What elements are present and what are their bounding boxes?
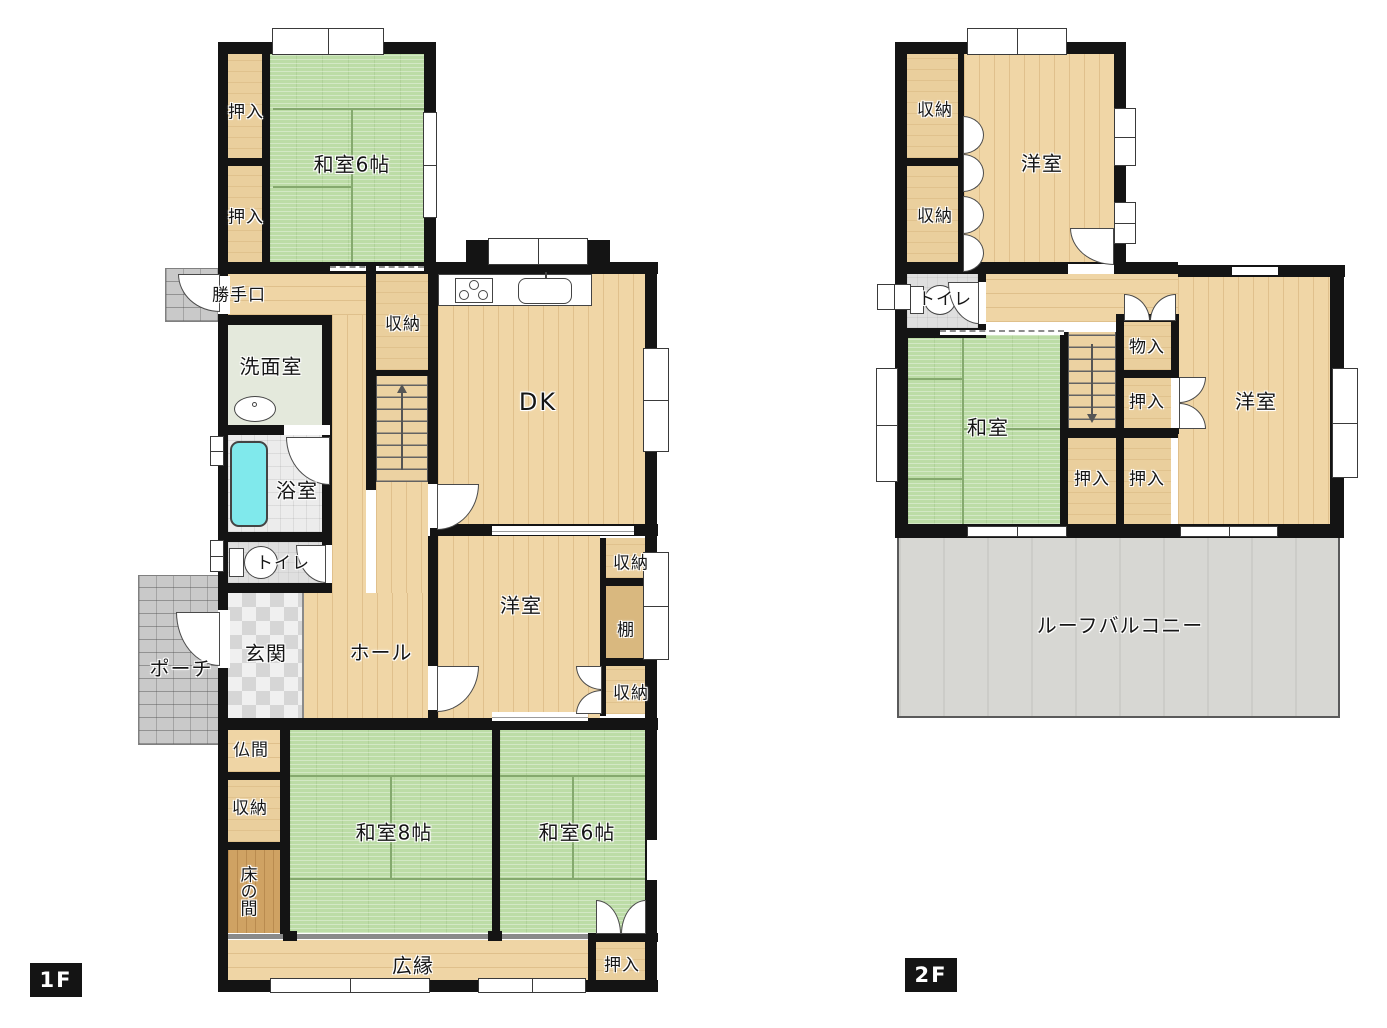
window (272, 28, 384, 55)
stairs-arrow-head (397, 384, 407, 393)
label-shuno1-2f: 収納 (917, 96, 953, 121)
wall (488, 931, 502, 941)
wall (1124, 370, 1178, 378)
stairs-arrow (1091, 344, 1093, 416)
wall (895, 158, 962, 166)
wall (280, 730, 290, 935)
window (210, 436, 224, 466)
window (1332, 368, 1358, 478)
sliding-door (330, 266, 424, 271)
label-tokonoma: 床の間 (235, 866, 260, 917)
label-washitsu8: 和室8帖 (356, 817, 433, 846)
tatami-line (962, 332, 964, 532)
wall (588, 933, 658, 942)
tatami-line (273, 108, 425, 110)
floor1-tag: 1F (30, 963, 82, 997)
sliding-door (940, 330, 1064, 335)
shoji-line (228, 934, 588, 939)
wall (428, 262, 438, 490)
label-shuno-kitchen: 収納 (385, 310, 421, 335)
label-genkan: 玄関 (245, 638, 287, 667)
window (967, 526, 1067, 537)
hall-understairs (376, 482, 428, 593)
door-gap (978, 282, 986, 324)
stove (455, 278, 493, 303)
sliding-opening (492, 526, 634, 535)
floor2-tag: 2F (905, 958, 957, 992)
label-senmenshitsu: 洗面室 (240, 351, 303, 380)
tatami-line (908, 378, 962, 380)
window (643, 348, 669, 452)
wall (895, 262, 1178, 274)
label-oshiire-b1: 押入 (1074, 465, 1110, 490)
label-katteguchi: 勝手口 (212, 281, 266, 306)
toilet-tank-1f (229, 548, 244, 577)
door-gap (284, 425, 330, 435)
wall (218, 532, 332, 542)
label-oshiire-top1: 押入 (228, 98, 264, 123)
window (478, 978, 586, 993)
stairs-arrow-head (1087, 414, 1097, 423)
wash-basin (234, 396, 276, 422)
door-gap (1068, 264, 1114, 274)
door-gap (1171, 378, 1179, 428)
stairs-arrow (401, 392, 403, 470)
window (210, 540, 224, 572)
wall (218, 315, 332, 325)
label-mononyu: 物入 (1129, 333, 1165, 358)
tatami-line (273, 186, 353, 188)
label-washitsu6-btm: 和室6帖 (539, 817, 616, 846)
window (876, 368, 898, 482)
label-shuno2-2f: 収納 (917, 202, 953, 227)
hall-strip (332, 315, 366, 593)
window (647, 840, 657, 880)
label-tana: 棚 (617, 616, 635, 641)
genkan-hall-edge (302, 593, 304, 718)
window (1232, 267, 1278, 275)
wall (1116, 314, 1124, 532)
label-oshiire-top2: 押入 (228, 203, 264, 228)
window (488, 238, 588, 265)
label-poochi: ポーチ (150, 653, 213, 682)
floorplan-canvas: 押入 押入 和室6帖 勝手口 収納 洗面室 DK 浴室 トイレ 玄関 ホール 洋… (0, 0, 1387, 1028)
label-shuno-r-btm: 収納 (613, 679, 649, 704)
label-oshiire-mid-2f: 押入 (1129, 388, 1165, 413)
label-yoshitsu-1f: 洋室 (500, 590, 542, 619)
label-dk: DK (519, 388, 557, 416)
wall (283, 931, 297, 941)
bathtub (230, 441, 268, 527)
wall (588, 240, 610, 265)
wall (492, 728, 500, 933)
wall (218, 583, 332, 593)
wall (218, 42, 228, 270)
label-butsuma: 仏間 (233, 736, 269, 761)
wall (466, 240, 488, 265)
label-oshiire-b2: 押入 (1129, 465, 1165, 490)
burner (459, 290, 469, 300)
label-hiroen: 広縁 (392, 950, 434, 979)
window (270, 978, 430, 993)
label-yoshitsu-top-2f: 洋室 (1021, 148, 1063, 177)
window (1114, 202, 1136, 244)
window (967, 28, 1067, 55)
wall (218, 730, 228, 992)
window (1180, 526, 1278, 537)
label-yokushitsu: 浴室 (276, 475, 318, 504)
wall (366, 262, 376, 490)
window (1114, 108, 1136, 166)
label-hooru: ホール (350, 637, 413, 666)
label-toire-1f: トイレ (256, 549, 310, 574)
wall (218, 158, 270, 166)
label-shuno-l: 収納 (232, 794, 268, 819)
wall (218, 772, 282, 780)
kitchen-sink (518, 278, 572, 304)
wall (1060, 428, 1178, 438)
wall (218, 718, 658, 730)
wall (588, 940, 596, 992)
wall (428, 536, 438, 666)
label-toire-2f: トイレ (918, 285, 972, 310)
window (423, 112, 437, 218)
tatami-line (908, 478, 962, 480)
window (877, 284, 911, 310)
burner (478, 290, 488, 300)
sliding-opening (492, 712, 588, 721)
label-washitsu-2f: 和室 (967, 412, 1009, 441)
label-oshiire-btm: 押入 (604, 951, 640, 976)
basin-drain (252, 402, 257, 407)
burner (469, 280, 479, 290)
wall (218, 842, 282, 850)
label-roof-balcony: ルーフバルコニー (1037, 610, 1203, 639)
wall (895, 42, 907, 270)
label-shuno-r-top: 収納 (613, 549, 649, 574)
label-washitsu6-top: 和室6帖 (314, 149, 391, 178)
label-yoshitsu-right-2f: 洋室 (1235, 386, 1277, 415)
